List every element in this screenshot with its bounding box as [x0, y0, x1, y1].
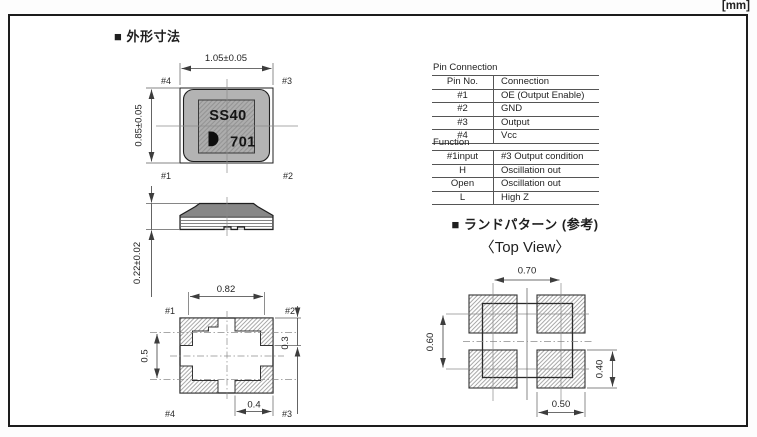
package-side-view: 0.22±0.02 — [132, 186, 273, 297]
table-row: #2 GND — [432, 103, 599, 117]
package-bottom-view: 0.82 #1 #2 #4 #3 0.5 0.3 0 — [140, 284, 302, 419]
connection-cell: GND — [494, 103, 599, 116]
output-cell: High Z — [494, 192, 599, 205]
technical-drawing: 1.05±0.05 SS40 701 #4 #3 #1 #2 0.85±0.05 — [0, 0, 757, 437]
package-top-view: 1.05±0.05 SS40 701 #4 #3 #1 #2 0.85±0.05 — [134, 53, 299, 181]
land-left-dim: 0.60 — [425, 333, 436, 352]
side-view-height-dim: 0.22±0.02 — [132, 242, 143, 284]
bottom-view-pin1-label: #1 — [165, 306, 175, 316]
marking-text-line2: 701 — [230, 135, 256, 151]
input-header: #1input — [432, 151, 494, 164]
land-bottom-dim: 0.50 — [552, 399, 571, 410]
marking-text-line1: SS40 — [209, 108, 246, 124]
land-pattern-drawing: 0.70 0.60 0.40 0.50 — [425, 266, 617, 418]
pin-connection-table-title: Pin Connection — [432, 62, 599, 76]
bottom-view-right-dim: 0.3 — [280, 336, 291, 349]
bottom-view-width-dim: 0.82 — [217, 284, 236, 295]
top-view-pin1-label: #1 — [161, 171, 171, 181]
bottom-view-pin4-label: #4 — [165, 409, 175, 419]
input-cell: Open — [432, 178, 494, 191]
connection-cell: OE (Output Enable) — [494, 90, 599, 103]
top-view-pin2-label: #2 — [283, 171, 293, 181]
function-table: Function #1input #3 Output condition H O… — [432, 137, 599, 205]
table-row: L High Z — [432, 192, 599, 206]
top-view-width-dim: 1.05±0.05 — [205, 53, 247, 64]
top-view-height-dim: 0.85±0.05 — [134, 104, 145, 146]
pin-no-header: Pin No. — [432, 76, 494, 89]
land-right-dim: 0.40 — [595, 360, 606, 379]
input-cell: L — [432, 192, 494, 205]
table-row: H Oscillation out — [432, 165, 599, 179]
function-header-row: #1input #3 Output condition — [432, 151, 599, 165]
table-row: Open Oscillation out — [432, 178, 599, 192]
pin-no-cell: #1 — [432, 90, 494, 103]
pin-no-cell: #3 — [432, 117, 494, 130]
top-view-pin3-label: #3 — [282, 76, 292, 86]
top-view-pin4-label: #4 — [161, 76, 171, 86]
input-cell: H — [432, 165, 494, 178]
output-condition-header: #3 Output condition — [494, 151, 599, 164]
bottom-view-left-dim: 0.5 — [140, 349, 151, 362]
table-row: #1 OE (Output Enable) — [432, 90, 599, 104]
land-top-dim: 0.70 — [518, 266, 537, 277]
output-cell: Oscillation out — [494, 165, 599, 178]
output-cell: Oscillation out — [494, 178, 599, 191]
function-table-title: Function — [432, 137, 599, 151]
table-row: #3 Output — [432, 117, 599, 131]
pin-connection-header-row: Pin No. Connection — [432, 76, 599, 90]
datasheet-page: [mm] ■ 外形寸法 ■ ランドパターン (参考) 〈Top View〉 1.… — [0, 0, 757, 437]
bottom-view-pin2-label: #2 — [285, 306, 295, 316]
pin-connection-table: Pin Connection Pin No. Connection #1 OE … — [432, 62, 599, 144]
bottom-view-bottom-dim: 0.4 — [247, 400, 260, 411]
connection-header: Connection — [494, 76, 599, 89]
bottom-view-pin3-label: #3 — [282, 409, 292, 419]
pin-no-cell: #2 — [432, 103, 494, 116]
connection-cell: Output — [494, 117, 599, 130]
